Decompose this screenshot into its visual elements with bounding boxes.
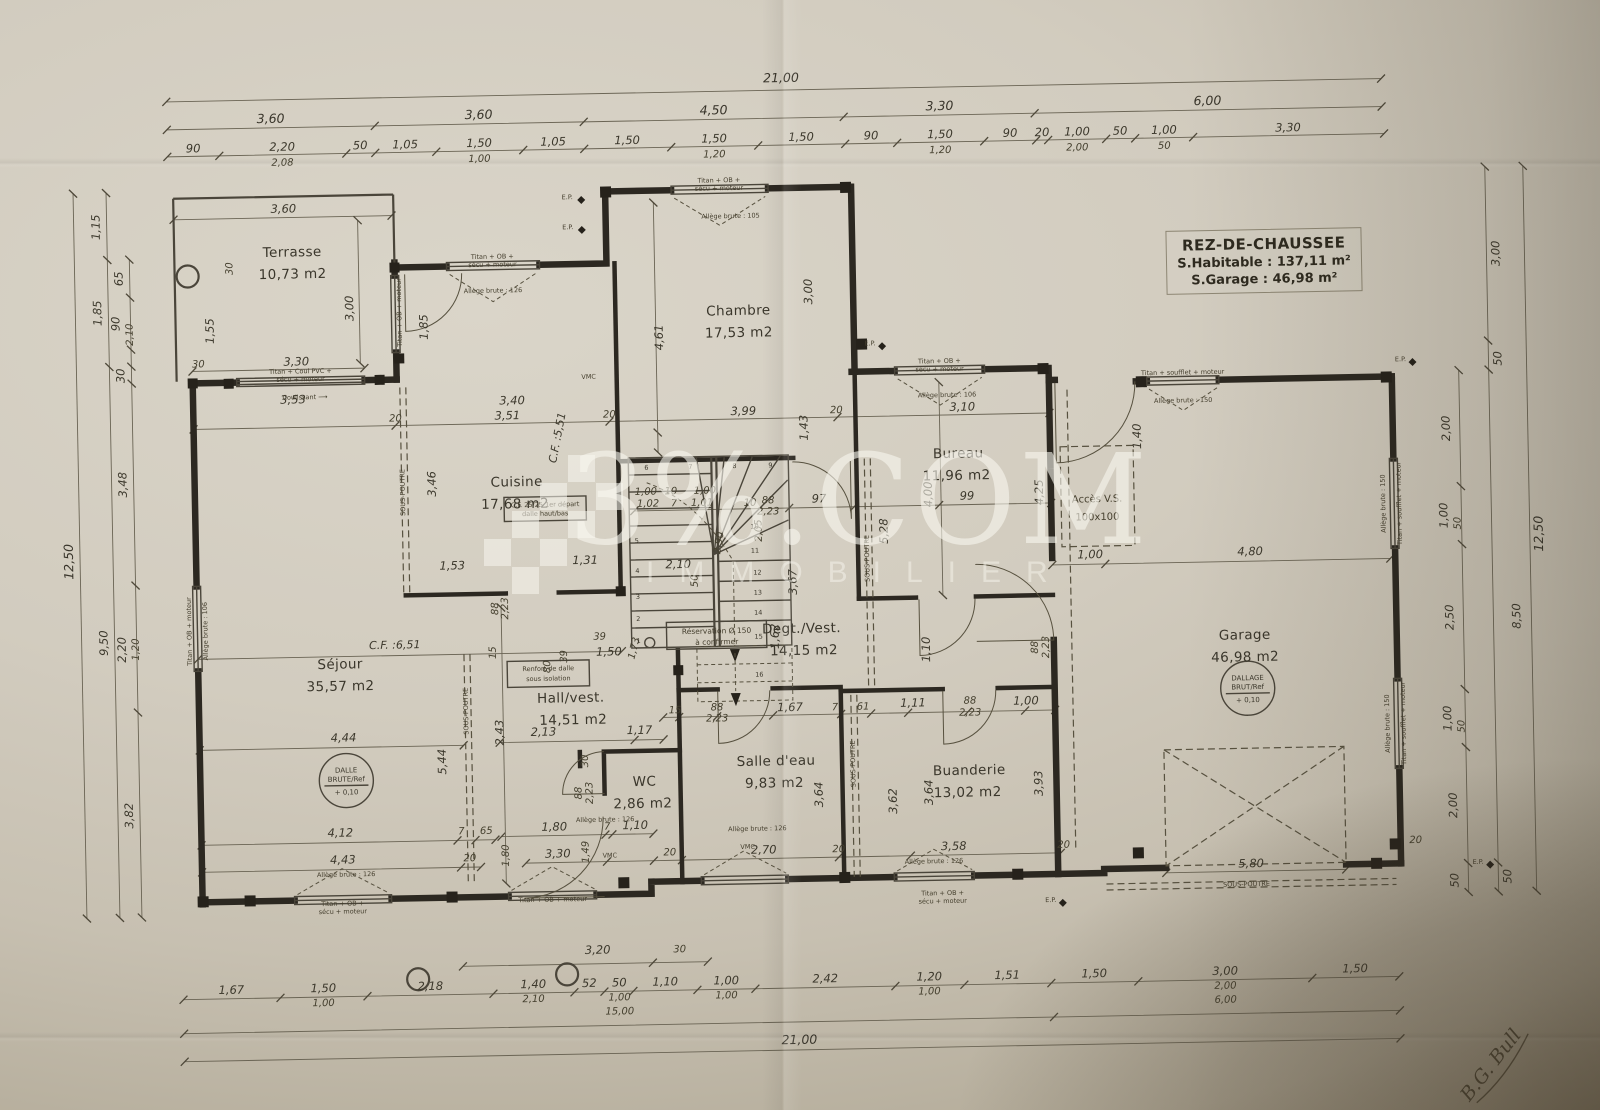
dim-label: 3,00	[1212, 963, 1238, 977]
room-name: Degt./Vest.	[762, 620, 841, 638]
dim-label: 3,30	[1275, 120, 1301, 134]
floor-plan-drawing: 21,00 3,60 3,60 4,50 3,30 6,00 90 2,20 5…	[0, 0, 1600, 1110]
interior-dimension-labels: 3,53 3,40 3,51 20 20 3,99 20 3,10 3,46 C…	[189, 180, 1424, 964]
note: VMC	[581, 373, 596, 381]
note: E.P.	[1395, 355, 1406, 363]
dim-label: 1,50	[596, 644, 622, 658]
dim-label: 10	[744, 498, 757, 509]
stair-number: 15	[754, 633, 762, 641]
dim-label: 1,51	[994, 968, 1020, 982]
dim-label: 3,20	[585, 943, 611, 957]
dim-label: 3,64	[811, 782, 825, 808]
dim-label: 88	[762, 495, 775, 506]
dim-label: 1,10	[652, 974, 678, 988]
window-note: Titan + soufflet + moteur	[1394, 461, 1404, 546]
dim-label: 1,00	[1064, 124, 1090, 138]
note: sous isolation	[526, 674, 571, 683]
dim-label: 1,49	[581, 841, 592, 863]
dim-label: 50	[612, 975, 627, 989]
dim-label: 1,00	[1151, 122, 1177, 136]
dim-label: 1,80	[541, 819, 567, 833]
dim-label: 2,10	[125, 323, 136, 345]
dim-label: 1,40	[520, 977, 546, 991]
dim-label: 30	[224, 262, 235, 275]
dim-label: 4,61	[652, 325, 666, 351]
note: Renfort de dalle	[522, 664, 574, 673]
dim-label: 88	[1030, 641, 1041, 654]
dim-label: 1,17	[626, 723, 653, 738]
window-note: Allège brute : 126	[728, 824, 787, 833]
dim-label: 4,12	[327, 825, 353, 839]
stair-number: 8	[732, 462, 736, 470]
dim-label: 2,90	[712, 531, 726, 555]
note: E.P.	[562, 193, 573, 201]
dim-label: 7	[671, 498, 678, 509]
stair-number: 10	[750, 523, 758, 531]
dim-label: 1,02	[637, 499, 659, 510]
dim-label: 3,00	[342, 295, 356, 321]
room-name: Garage	[1219, 627, 1271, 644]
dim-label: 3,51	[494, 408, 520, 422]
dim-label: 2,50	[1442, 604, 1456, 630]
dim-label: 2,10	[522, 994, 544, 1005]
room-name: Chambre	[706, 302, 771, 319]
dim-label: 20	[832, 844, 845, 855]
dim-label: 4,44	[331, 730, 357, 744]
dim-label: 1,20	[916, 969, 942, 983]
note: dalle haut/bas	[522, 509, 569, 518]
stair-number: 1	[637, 637, 641, 645]
dim-label: 2,23	[959, 707, 981, 718]
dim-label: 30	[192, 359, 205, 370]
dim-label: 12,50	[1530, 516, 1546, 552]
dim-label: 3,60	[257, 111, 285, 127]
dim-label: 1,15	[88, 214, 102, 240]
slab-note: BRUT/Ref	[1231, 683, 1264, 692]
dim-label: 10	[664, 486, 677, 497]
signature: B.G. Bull	[1456, 1021, 1533, 1109]
window-note: Allège brute : 150	[1383, 694, 1392, 753]
dim-label: 2,08	[271, 157, 293, 168]
dim-label: 1,20	[703, 149, 725, 160]
dim-label: 3,10	[949, 399, 975, 413]
note: Réservation Ø 150	[682, 626, 752, 636]
dim-label: 65	[112, 271, 126, 286]
dim-label: 1,55	[202, 318, 216, 344]
note: SOUS-POUTRE	[1223, 880, 1270, 889]
slab-note: DALLAGE	[1231, 674, 1264, 683]
window-note: sécu + moteur	[915, 365, 964, 374]
dim-label: 2,42	[812, 971, 838, 985]
note: VMC	[602, 851, 617, 859]
dim-label: 3,00	[1488, 240, 1502, 266]
dim-label: 2,00	[1066, 142, 1088, 153]
dim-label: 4,25	[1032, 479, 1046, 505]
note: SOUS-POUTRE	[863, 535, 872, 582]
dim-label: 2,00	[1439, 415, 1453, 441]
dim-label: 6,00	[1214, 995, 1236, 1006]
stair-number: 3	[636, 593, 640, 601]
dim-label: 1,50	[310, 981, 336, 995]
surface-habitable: S.Habitable : 137,11 m²	[1171, 253, 1357, 272]
dim-label: 5,44	[435, 749, 449, 775]
dim-label: 1,67	[777, 700, 804, 715]
dim-label: 7	[832, 702, 839, 713]
dim-label: 3,62	[886, 788, 900, 814]
dim-label: 1,85	[90, 300, 104, 326]
dim-label: 6,00	[1193, 93, 1221, 109]
dim-label: 1,00	[715, 990, 737, 1001]
floor-plan-photo: 21,00 3,60 3,60 4,50 3,30 6,00 90 2,20 5…	[0, 0, 1600, 1110]
slab-note: BRUTE/Ref	[328, 775, 366, 784]
dim-label: 5,28	[876, 518, 890, 544]
stair-number: 6	[644, 464, 648, 472]
dim-label: 15	[488, 646, 499, 659]
dim-label: C.F. :5,51	[546, 411, 568, 464]
note: à confirmer	[695, 637, 739, 647]
dim-label: 39	[559, 650, 570, 663]
room-name: Cuisine	[490, 474, 542, 491]
dim-label: 1,00	[1013, 693, 1039, 707]
dim-label: 20	[1035, 125, 1050, 139]
note: E.P.	[864, 339, 875, 347]
stair-number: 16	[755, 671, 763, 679]
window-note: Allège brute : 126	[905, 857, 964, 866]
note: SOUS-POUTRE	[398, 469, 407, 516]
dim-label: 5,80	[1238, 856, 1264, 870]
dim-label: 3,30	[925, 98, 953, 114]
note: E.P.	[1472, 858, 1483, 866]
stair-number: 2	[636, 615, 640, 623]
dim-label: 88	[963, 695, 976, 706]
window-note: Allège brute : 150	[1379, 474, 1388, 533]
room-name: Buanderie	[933, 762, 1006, 779]
dim-label: 4,80	[1237, 544, 1263, 558]
dim-label: 4,00	[921, 481, 935, 507]
dim-label: 3,58	[941, 839, 967, 853]
room-area: 11,96 m2	[923, 467, 991, 484]
room-area: 13,02 m2	[934, 784, 1002, 801]
dim-label: 12,50	[61, 544, 77, 580]
slab-note: + 0,10	[1236, 696, 1260, 704]
dim-label: 1,20	[131, 638, 142, 660]
dim-label: 4,50	[699, 102, 727, 118]
dim-label: 30	[113, 368, 127, 383]
dim-label: 3,82	[122, 803, 136, 829]
dim-label: 3,48	[115, 472, 129, 498]
dim-label: 2,23	[500, 597, 511, 619]
room-area: 10,73 m2	[259, 266, 327, 283]
note: Coulissant ⟶	[282, 393, 327, 402]
window-note: Titan + OB + moteur	[185, 597, 194, 667]
window-note: Titan + OB + moteur	[517, 895, 587, 904]
window-note: Titan + soufflet + moteur	[1140, 368, 1225, 378]
dim-label: 1,50	[1342, 961, 1368, 975]
stair-number: 13	[754, 589, 762, 597]
dim-label: 15	[669, 705, 682, 716]
dim-label: 1,05	[392, 137, 418, 151]
dim-label: 2,18	[417, 979, 443, 993]
dim-label: 7	[458, 826, 465, 837]
dim-label: 1,00	[1436, 503, 1450, 529]
window-note: Allège brute : 126	[464, 286, 523, 295]
dim-label: 50	[1490, 351, 1504, 366]
dim-label: 88	[574, 787, 585, 800]
dim-label: 1,00	[694, 485, 716, 496]
dim-label: 3,93	[1031, 770, 1045, 796]
dim-label: 3,46	[424, 471, 438, 497]
note: SOUS-POUTRE	[849, 740, 858, 787]
dim-label: 1,01	[691, 497, 713, 508]
dim-label: 1,50	[466, 136, 492, 150]
window-note: sécu + moteur	[276, 375, 325, 384]
room-name: WC	[632, 774, 656, 790]
window-note: Allège brute : 105	[701, 212, 760, 221]
dim-label: 2,23	[706, 713, 728, 724]
dim-label: 1,00	[468, 154, 490, 165]
dim-label: 1,00	[1077, 547, 1103, 561]
access-vs-label: Accès V.S.	[1072, 493, 1123, 506]
dim-label: 3,60	[270, 201, 296, 215]
dim-label: 20	[830, 405, 843, 416]
dim-label: 2,20	[269, 139, 295, 153]
dim-label: 50	[1447, 873, 1461, 888]
dim-label: 3,99	[730, 404, 756, 418]
room-area: 9,83 m2	[745, 775, 804, 792]
dim-label: 20	[389, 413, 402, 424]
room-name: Terrasse	[262, 244, 322, 261]
dim-label: 39	[593, 632, 606, 643]
dim-label: 88	[711, 702, 724, 713]
room-name: Salle d'eau	[737, 753, 816, 771]
dim-label: 50	[1452, 517, 1463, 530]
dim-label: 90	[1003, 126, 1018, 140]
dim-label: 1,50	[701, 131, 727, 145]
title-block: REZ-DE-CHAUSSEE S.Habitable : 137,11 m² …	[1165, 227, 1362, 295]
dim-label: 20	[603, 409, 616, 420]
room-area: 14,15 m2	[770, 642, 838, 659]
access-vs-label: 100x100	[1075, 512, 1119, 524]
window-note: Titan + OB + moteur	[395, 278, 404, 348]
dim-label: C.F. :6,51	[369, 638, 421, 652]
dim-label: 1,00	[713, 973, 739, 987]
dim-label: 1,05	[540, 134, 566, 148]
terrace-outline	[173, 195, 396, 382]
signature-text: B.G. Bull	[1456, 1025, 1526, 1106]
dim-label: 20	[463, 853, 476, 864]
dim-label: 20	[663, 847, 676, 858]
dim-label: 65	[480, 826, 493, 837]
dim-label: 15,00	[605, 1006, 634, 1018]
room-name: Bureau	[933, 445, 984, 462]
room-area: 17,53 m2	[705, 324, 773, 341]
left-dimension-labels: 12,50 1,15 1,85 9,50 65 90 2,10 30 3,48 …	[54, 214, 145, 830]
dim-label: 21,00	[763, 70, 799, 86]
note: E.P.	[1045, 896, 1056, 904]
dim-label: 1,00	[635, 487, 657, 498]
window-note: Allège brute : 106	[918, 390, 977, 399]
note: VMC	[740, 843, 755, 851]
dim-label: 50	[1158, 141, 1171, 152]
dim-label: 1,85	[416, 314, 430, 340]
window-note: sécu + moteur	[695, 184, 744, 193]
window-note: sécu + moteur	[468, 260, 517, 269]
dim-label: 1,00	[918, 986, 940, 997]
dim-label: 1,43	[796, 415, 810, 441]
dim-label: 8,50	[1509, 603, 1523, 629]
dimension-lines	[71, 76, 1539, 1064]
dim-label: 1,50	[614, 133, 640, 147]
room-area: 46,98 m2	[1211, 649, 1279, 666]
dim-label: 4,43	[330, 852, 356, 866]
bottom-dimension-labels: 1,67 1,50 2,18 1,40 52 50 1,10 1,00 2,42…	[218, 961, 1369, 1058]
stair-number: 4	[635, 567, 639, 575]
dim-label: 1,67	[218, 983, 245, 998]
dim-label: 50	[1500, 869, 1514, 884]
dim-label: 3,60	[465, 107, 493, 123]
room-labels: Terrasse 10,73 m2 Chambre 17,53 m2 Cuisi…	[258, 226, 1282, 819]
dim-label: 3,30	[545, 846, 571, 860]
stair-number: 5	[635, 537, 639, 545]
room-name: Hall/vest.	[537, 690, 605, 707]
dim-label: 1,00	[1440, 705, 1454, 731]
dim-label: 2,23	[1041, 636, 1052, 658]
dim-label: 90	[864, 128, 879, 142]
stair-number: 11	[751, 547, 759, 555]
window-note: sécu + moteur	[919, 897, 968, 906]
dim-label: 20	[1409, 835, 1422, 846]
dim-label: 2,43	[492, 720, 506, 746]
dim-label: 3,40	[499, 393, 525, 407]
dim-label: 30	[580, 754, 591, 767]
dim-label: 2,00	[1214, 981, 1236, 992]
slab-note: + 0,10	[335, 788, 359, 796]
room-area: 14,51 m2	[539, 712, 607, 729]
dim-label: 2,10	[665, 557, 691, 571]
surface-garage: S.Garage : 46,98 m²	[1171, 270, 1357, 289]
dim-label: 52	[582, 976, 597, 990]
slab-note: DALLE	[335, 766, 357, 774]
dim-label: 1,31	[572, 553, 598, 567]
dim-label: 1,50	[927, 127, 953, 141]
plan-title: REZ-DE-CHAUSSEE	[1171, 233, 1357, 255]
note: C.F. 25/25 1er départ	[511, 500, 580, 509]
dim-label: 61	[857, 702, 870, 713]
dim-label: 1,00	[312, 998, 334, 1009]
window-note: Allège brute : 126	[317, 870, 376, 879]
dim-label: 50	[1456, 720, 1467, 733]
dim-label: 90	[186, 141, 201, 155]
stair-number: 14	[754, 609, 762, 617]
dim-label: 2,20	[115, 637, 129, 663]
dim-label: 3,67	[785, 568, 800, 595]
dim-label: 9,50	[96, 630, 110, 656]
note: SOUS-POUTRE	[462, 688, 471, 735]
top-dimension-labels: 21,00 3,60 3,60 4,50 3,30 6,00 90 2,20 5…	[185, 60, 1302, 170]
dim-label: 97	[812, 491, 828, 505]
dim-label: 1,10	[919, 636, 933, 662]
dim-label: 1,53	[439, 558, 465, 572]
dim-label: 20	[1057, 840, 1070, 851]
window-note: Allège brute : 150	[1154, 396, 1213, 405]
stair-number: 9	[768, 461, 772, 469]
window-note: Allège brute : 106	[201, 602, 210, 661]
dim-label: 90	[108, 316, 122, 331]
dim-label: 1,40	[1130, 423, 1144, 449]
stair-number: 7	[688, 463, 692, 471]
note: E.P.	[562, 223, 573, 231]
window-note: Titan + soufflet + moteur	[1399, 681, 1409, 766]
dim-label: 1,11	[900, 695, 926, 709]
dim-label: 1,50	[1081, 966, 1107, 980]
dim-label: 1,80	[501, 844, 512, 866]
dim-label: 50	[353, 138, 368, 152]
dim-label: 1,20	[929, 145, 951, 156]
dim-label: 2,23	[757, 506, 779, 517]
dim-label: 1,00	[608, 992, 630, 1003]
dim-label: 2,23	[584, 782, 595, 804]
room-area: 2,86 m2	[613, 795, 672, 812]
dim-label: 21,00	[781, 1032, 817, 1048]
dim-label: 3,00	[801, 279, 815, 305]
dim-label: 50	[689, 574, 700, 587]
dim-label: 99	[960, 488, 975, 502]
room-name: Séjour	[317, 656, 363, 673]
window-note: sécu + moteur	[319, 907, 368, 916]
dim-label: 1,50	[788, 129, 814, 143]
dim-label: 2,00	[1446, 792, 1460, 818]
dim-label: 50	[1113, 123, 1128, 137]
window-note: Allège brute : 126	[576, 815, 635, 824]
room-area: 35,57 m2	[306, 678, 374, 695]
dim-label: 30	[673, 944, 686, 955]
stair-number: 12	[753, 569, 761, 577]
